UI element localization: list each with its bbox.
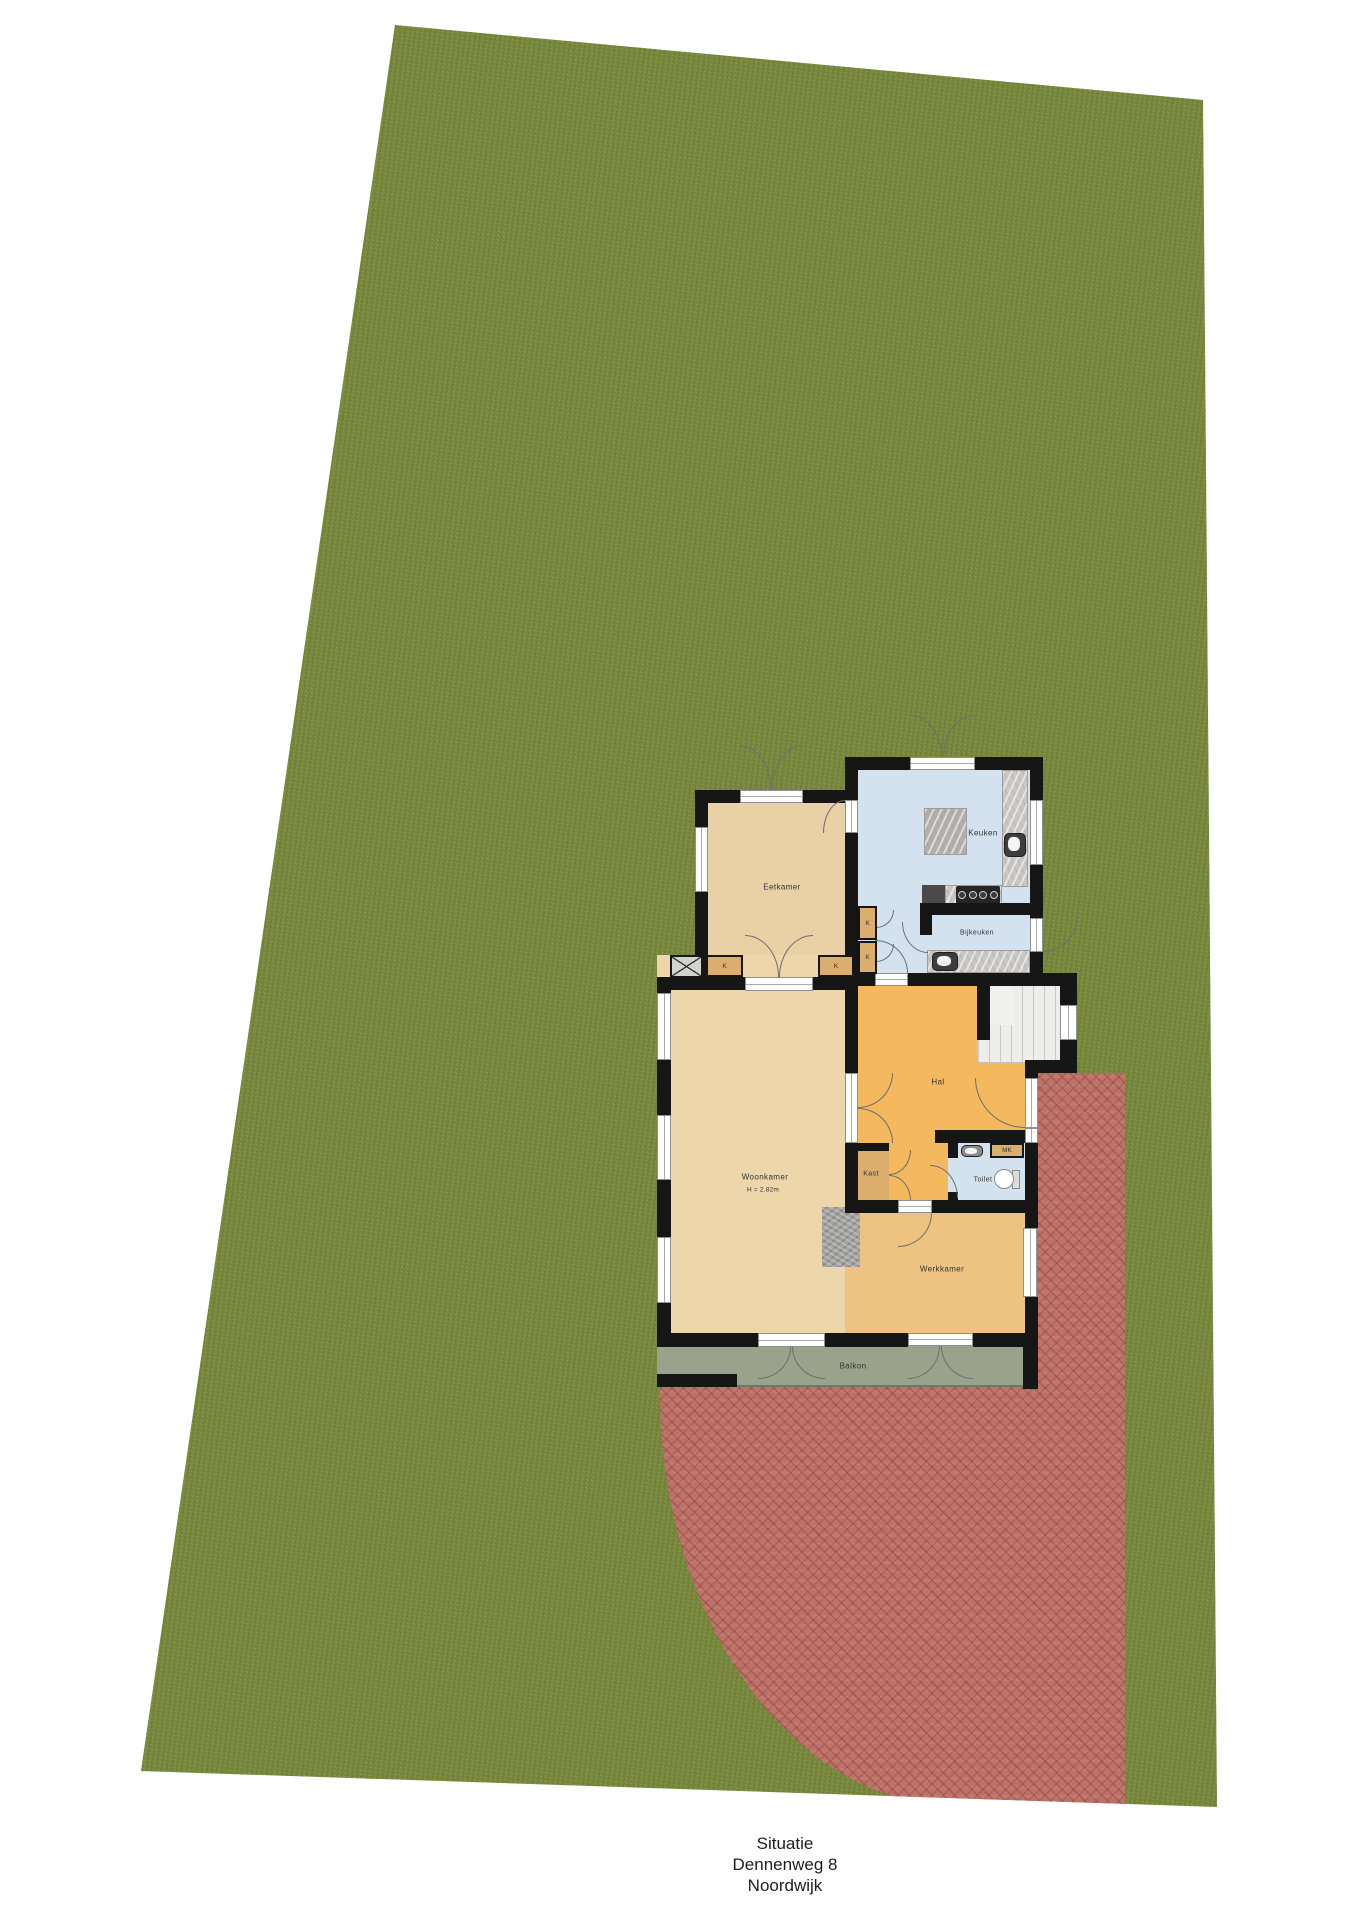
label-eetkamer: Eetkamer [763,883,800,892]
label-balkon: Balkon [840,1362,867,1371]
window [1030,800,1043,865]
wall [948,1143,958,1158]
closet-k-label: K [722,963,726,970]
label-toilet: Toilet [974,1177,993,1184]
door-threshold [845,800,858,833]
door-threshold [875,973,908,986]
wall [1060,973,1077,1005]
wall [1025,1143,1038,1228]
wall [657,1374,737,1387]
wall [908,973,1077,986]
situatie-plan: K K K K MK Eetkamer Keuken Bijkeuken Hal… [0,0,1358,1920]
caption-title: Situatie [585,1833,985,1854]
mk-label: MK [1002,1147,1012,1154]
cooktop [956,886,1000,904]
wall [657,977,671,993]
shaft-hatch-box [670,955,703,978]
door-threshold [745,977,813,991]
label-bijkeuken: Bijkeuken [960,930,994,937]
caption-address: Dennenweg 8 [585,1854,985,1875]
wall [825,1333,908,1347]
wall [657,1180,671,1237]
wall [932,1200,1038,1213]
wall [845,1200,898,1213]
wall [1030,865,1043,918]
window [695,827,708,892]
wall [845,1143,889,1151]
wall [845,757,910,770]
wall [920,903,1030,915]
closet-k: K [706,955,743,977]
label-woonkamer-height: H = 2.82m [747,1187,779,1194]
wall [1030,757,1043,800]
kitchen-sink [1004,833,1026,857]
closet-k: K [858,941,877,974]
label-kast: Kast [863,1171,879,1178]
label-keuken: Keuken [968,829,998,838]
door-threshold [898,1200,932,1213]
wall [1025,1060,1038,1078]
closet-k-label: K [865,920,869,927]
wall [977,985,990,1040]
door-threshold [908,1333,973,1346]
closet-k: K [818,955,854,977]
closet-k-label: K [865,954,869,961]
kitchen-island [924,808,967,855]
door-threshold [1030,918,1043,952]
meter-cupboard-mk: MK [990,1143,1024,1158]
toilet-bowl [994,1169,1014,1189]
window [657,993,671,1060]
wall [845,990,858,1073]
door-threshold [740,790,803,803]
door-threshold [845,1073,858,1143]
window [1023,1228,1037,1297]
wall [1023,1345,1038,1389]
utility-sink [932,952,958,971]
wall [695,790,708,827]
window [657,1237,671,1303]
window [657,1115,671,1180]
window [1025,1128,1038,1143]
wall [813,977,858,990]
toilet-sink [961,1145,983,1157]
fireplace [822,1207,860,1267]
window [1060,1005,1077,1040]
wall [845,770,858,800]
wall [657,1333,758,1347]
wall [935,1130,1038,1143]
room-woonkamer [657,955,858,1347]
kitchen-counter-right [1002,770,1028,887]
label-hal: Hal [931,1078,944,1087]
label-werkkamer: Werkkamer [920,1265,964,1274]
door-threshold [910,757,975,770]
closet-k-label: K [834,963,838,970]
closet-k: K [858,906,877,940]
caption: Situatie Dennenweg 8 Noordwijk [585,1833,985,1896]
wall [657,1060,671,1115]
label-woonkamer: Woonkamer [742,1173,789,1182]
door-threshold [758,1333,825,1347]
kitchen-cabinet-dark [922,885,945,905]
caption-city: Noordwijk [585,1875,985,1896]
front-door-threshold [1025,1078,1038,1128]
